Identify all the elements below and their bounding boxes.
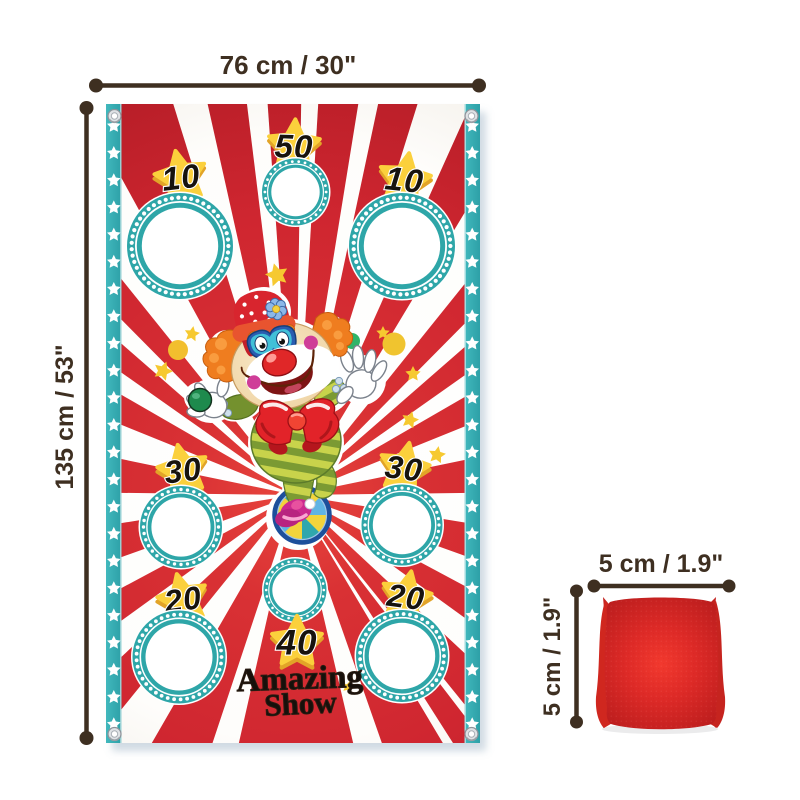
svg-text:5 cm / 1.9": 5 cm / 1.9" — [539, 597, 566, 716]
svg-text:5 cm / 1.9": 5 cm / 1.9" — [599, 550, 723, 578]
svg-text:135 cm / 53": 135 cm / 53" — [51, 344, 79, 489]
svg-text:30: 30 — [383, 448, 425, 488]
svg-text:76 cm / 30": 76 cm / 30" — [220, 50, 357, 80]
svg-text:40: 40 — [276, 623, 318, 662]
svg-text:Show: Show — [263, 684, 338, 723]
